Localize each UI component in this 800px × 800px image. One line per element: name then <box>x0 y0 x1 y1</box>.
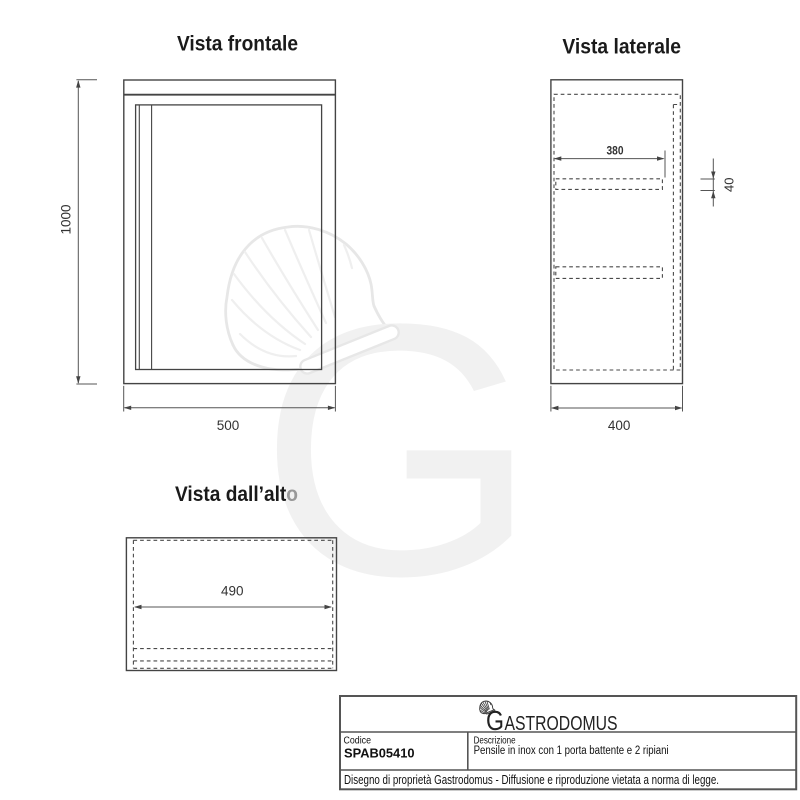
svg-text:Vista dall’alto: Vista dall’alto <box>175 483 298 506</box>
svg-text:1000: 1000 <box>59 204 74 234</box>
svg-text:G: G <box>259 250 538 651</box>
svg-text:500: 500 <box>217 418 240 433</box>
svg-text:Disegno di proprietà Gastrodom: Disegno di proprietà Gastrodomus - Diffu… <box>344 773 719 787</box>
svg-text:Pensile in inox con 1 porta ba: Pensile in inox con 1 porta battente e 2… <box>474 745 669 757</box>
svg-text:G: G <box>486 705 504 736</box>
svg-text:ASTRODOMUS: ASTRODOMUS <box>505 712 618 735</box>
svg-text:SPAB05410: SPAB05410 <box>344 746 415 761</box>
svg-text:Vista frontale: Vista frontale <box>177 33 298 56</box>
svg-text:380: 380 <box>607 143 624 157</box>
svg-text:Vista laterale: Vista laterale <box>562 35 681 58</box>
svg-text:40: 40 <box>722 178 737 192</box>
svg-text:Codice: Codice <box>344 735 372 746</box>
svg-text:400: 400 <box>608 418 631 433</box>
svg-text:490: 490 <box>221 584 244 599</box>
